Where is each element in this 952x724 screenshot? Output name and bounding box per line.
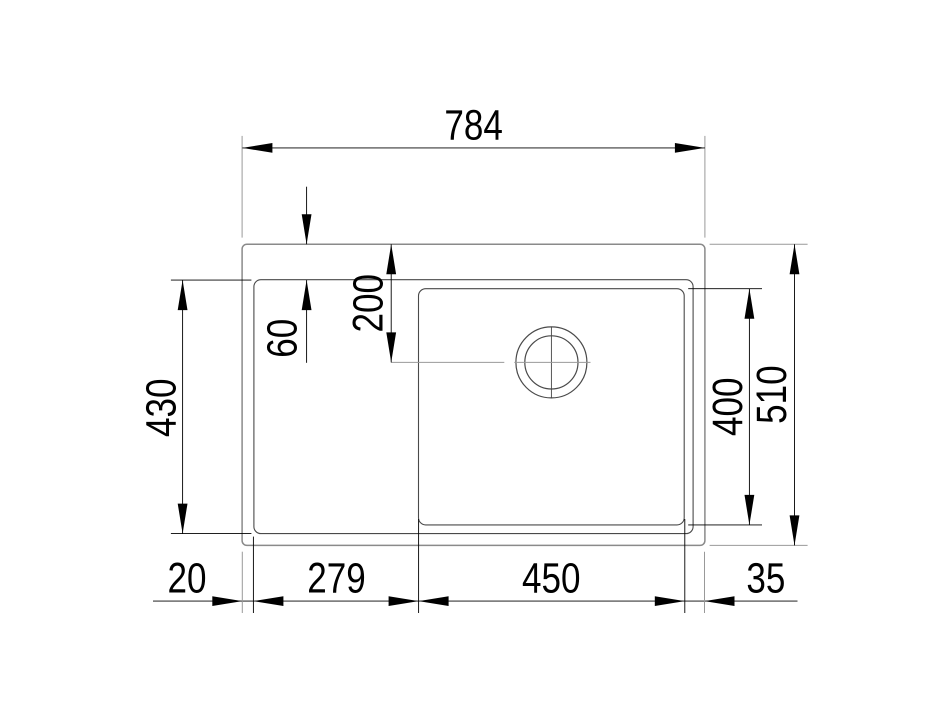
svg-text:430: 430 bbox=[137, 379, 185, 437]
svg-text:510: 510 bbox=[748, 365, 796, 423]
svg-text:60: 60 bbox=[258, 319, 306, 358]
svg-text:20: 20 bbox=[168, 554, 207, 602]
svg-text:450: 450 bbox=[522, 554, 580, 602]
svg-text:400: 400 bbox=[704, 378, 752, 436]
svg-text:200: 200 bbox=[344, 274, 392, 332]
svg-text:279: 279 bbox=[307, 554, 365, 602]
svg-text:784: 784 bbox=[444, 101, 502, 149]
svg-text:35: 35 bbox=[746, 554, 785, 602]
